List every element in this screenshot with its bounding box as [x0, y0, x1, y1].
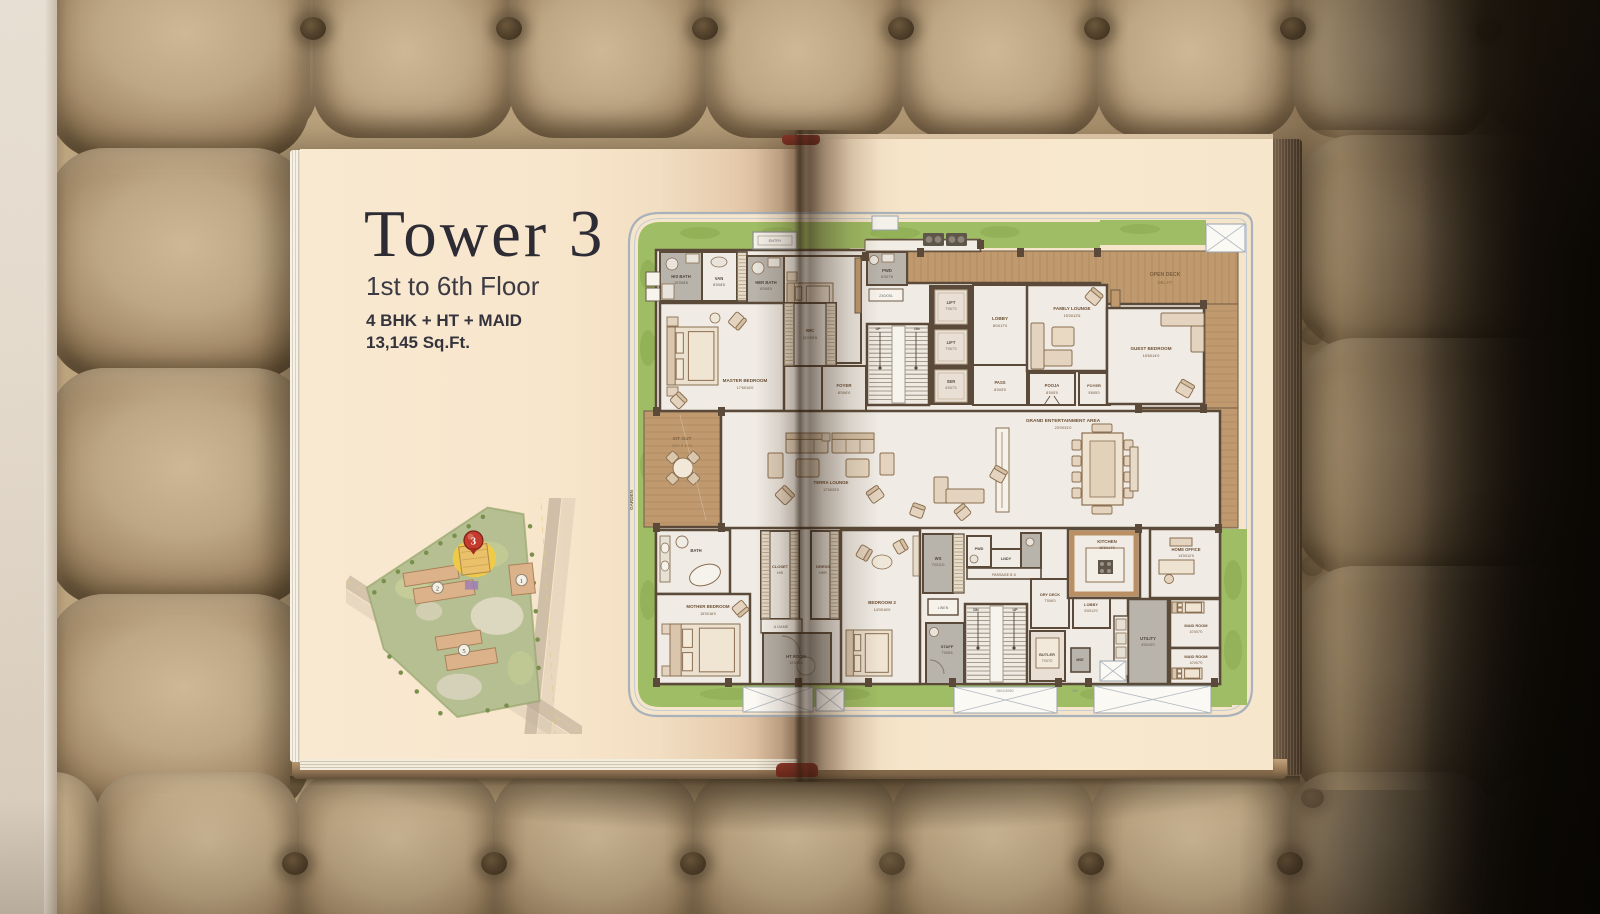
- svg-text:060418050: 060418050: [997, 689, 1014, 693]
- svg-text:MAID ROOM: MAID ROOM: [1184, 654, 1207, 659]
- svg-text:7'0X11'0: 7'0X11'0: [932, 563, 945, 567]
- svg-text:7'0X7'0: 7'0X7'0: [945, 307, 956, 311]
- svg-text:230/051: 230/051: [879, 294, 893, 298]
- svg-text:PWD: PWD: [975, 547, 984, 551]
- svg-text:7'0X7'0: 7'0X7'0: [1042, 659, 1053, 663]
- svg-text:KITCHEN: KITCHEN: [1097, 539, 1117, 544]
- svg-text:SER: SER: [947, 379, 956, 384]
- svg-text:8'0X5'0: 8'0X5'0: [1046, 391, 1058, 395]
- svg-text:POOJA: POOJA: [1045, 383, 1060, 388]
- svg-text:6'0X7'0: 6'0X7'0: [945, 386, 956, 390]
- svg-text:23'0X31'0: 23'0X31'0: [1055, 426, 1072, 430]
- svg-text:15'0X12'6: 15'0X12'6: [1064, 314, 1081, 318]
- svg-text:STAFF: STAFF: [941, 644, 954, 649]
- svg-text:LNDY: LNDY: [1001, 557, 1012, 561]
- svg-text:MAID ROOM: MAID ROOM: [1184, 623, 1207, 628]
- svg-text:LIFT: LIFT: [947, 340, 956, 345]
- svg-text:PASSAGE 8'-0: PASSAGE 8'-0: [992, 573, 1016, 577]
- svg-text:6'0X12'0: 6'0X12'0: [1085, 609, 1098, 613]
- svg-text:LOBBY: LOBBY: [992, 316, 1008, 321]
- svg-text:7'0X7'0: 7'0X7'0: [945, 347, 956, 351]
- svg-text:2: 2: [436, 586, 439, 593]
- svg-text:DBL HT: DBL HT: [1158, 280, 1173, 285]
- svg-text:14'0X12'0: 14'0X12'0: [1178, 554, 1194, 558]
- svg-text:8'0X17'0: 8'0X17'0: [993, 324, 1008, 328]
- svg-text:500: 500: [1072, 689, 1078, 693]
- svg-text:15'6X14'0: 15'6X14'0: [1143, 354, 1160, 358]
- svg-text:8'0X5'0: 8'0X5'0: [994, 388, 1006, 392]
- svg-text:5'6X5'0: 5'6X5'0: [1088, 391, 1099, 395]
- svg-text:1: 1: [520, 578, 523, 585]
- svg-text:PWD: PWD: [882, 268, 892, 273]
- svg-text:10'0X7'0: 10'0X7'0: [1190, 661, 1203, 665]
- svg-text:15'0X16'0: 15'0X16'0: [700, 612, 716, 616]
- svg-text:15'6X14'0: 15'6X14'0: [1099, 546, 1115, 550]
- svg-text:10'0X8'6: 10'0X8'6: [674, 281, 688, 285]
- svg-text:MSE: MSE: [1076, 658, 1084, 662]
- svg-text:FAMILY LOUNGE: FAMILY LOUNGE: [1053, 306, 1090, 311]
- svg-text:HIS BATH: HIS BATH: [671, 274, 690, 279]
- svg-text:DN: DN: [914, 327, 920, 331]
- svg-text:UP: UP: [1013, 608, 1019, 612]
- svg-text:DN: DN: [973, 608, 979, 612]
- svg-text:SIT OUT: SIT OUT: [673, 436, 692, 442]
- svg-text:OPEN DECK: OPEN DECK: [1150, 272, 1181, 278]
- svg-text:25'0 X 10'0: 25'0 X 10'0: [672, 443, 693, 448]
- svg-text:7'0X6'0: 7'0X6'0: [1044, 599, 1055, 603]
- svg-text:LINEN: LINEN: [938, 606, 949, 610]
- svg-text:PASS: PASS: [994, 380, 1005, 385]
- svg-text:UTILITY: UTILITY: [1140, 636, 1156, 641]
- svg-text:17'6X16'0: 17'6X16'0: [737, 386, 754, 390]
- svg-text:DRY DECK: DRY DECK: [1040, 592, 1060, 597]
- svg-text:GUEST BEDROOM: GUEST BEDROOM: [1130, 346, 1171, 351]
- svg-text:BUTLER: BUTLER: [1039, 652, 1055, 657]
- svg-text:LIFT: LIFT: [947, 300, 956, 305]
- svg-text:7'0X5'6: 7'0X5'6: [941, 651, 952, 655]
- svg-text:WS: WS: [935, 556, 942, 561]
- svg-text:BATH: BATH: [690, 548, 701, 553]
- svg-text:8'0X10'0: 8'0X10'0: [1142, 643, 1155, 647]
- svg-text:MOTHER BEDROOM: MOTHER BEDROOM: [686, 604, 730, 609]
- svg-text:GARDEN: GARDEN: [629, 489, 634, 510]
- svg-text:HOME OFFICE: HOME OFFICE: [1171, 547, 1200, 552]
- svg-text:3: 3: [471, 537, 476, 548]
- svg-text:LOBBY: LOBBY: [1084, 602, 1098, 607]
- svg-text:FOYER: FOYER: [1087, 383, 1101, 388]
- svg-text:VAN: VAN: [715, 276, 724, 281]
- svg-text:10'0X7'0: 10'0X7'0: [1190, 630, 1203, 634]
- svg-text:GRAND ENTERTAINMENT AREA: GRAND ENTERTAINMENT AREA: [1026, 418, 1101, 424]
- svg-text:8'0X8'6: 8'0X8'6: [713, 283, 725, 287]
- svg-text:6'0X7'6: 6'0X7'6: [881, 275, 893, 279]
